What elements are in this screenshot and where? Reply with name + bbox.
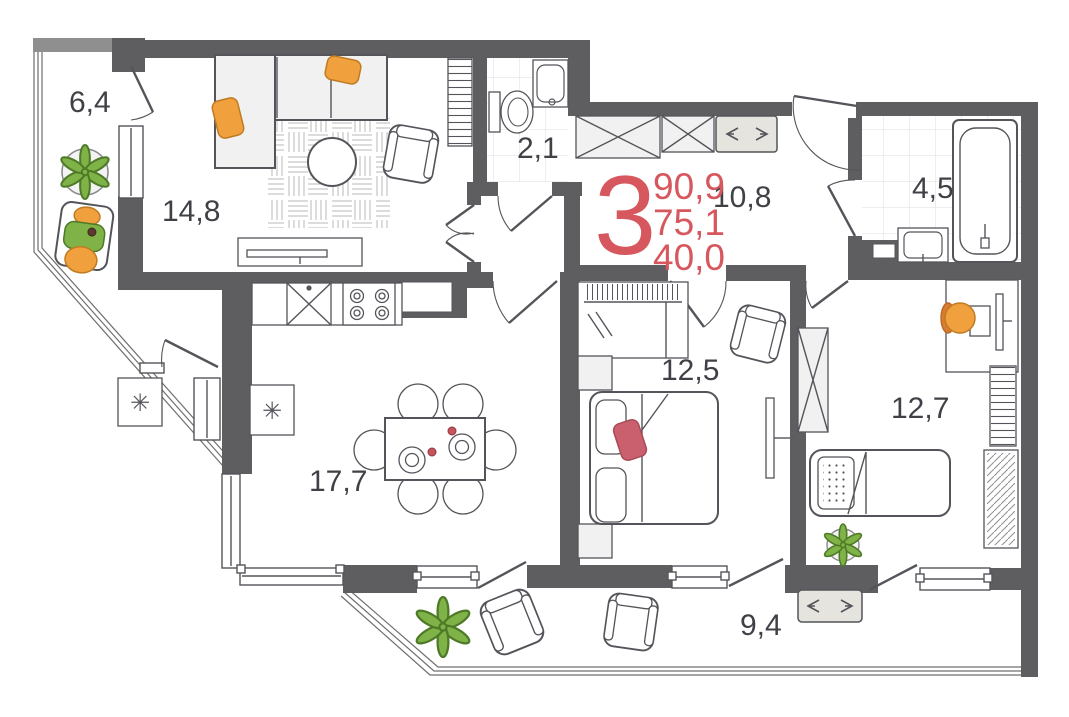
kitchen-sink xyxy=(287,283,331,325)
armchair-living xyxy=(382,124,440,185)
bathroom-sink xyxy=(898,228,948,262)
sliding-closet-hall xyxy=(716,116,777,152)
double-bed xyxy=(590,392,718,524)
living-area: 40,0 xyxy=(653,237,725,278)
floor-plan-svg: ✳ ✳ 6,4 14,8 2,1 10,8 4,5 xyxy=(0,0,1069,717)
kitchen-loggia-window-box xyxy=(194,378,220,440)
ladder-shelf xyxy=(448,58,472,146)
tv-icon xyxy=(247,250,327,257)
fridge-icon: ✳ xyxy=(262,397,282,425)
hallway-storage xyxy=(576,116,777,158)
kitchen-window xyxy=(413,566,479,588)
room-label-balcony: 9,4 xyxy=(740,609,782,642)
room-label-wc: 2,1 xyxy=(517,132,559,165)
room-label-bedroom: 12,5 xyxy=(661,354,719,387)
sliding-closet-kids xyxy=(798,590,862,622)
bedroom-window xyxy=(668,566,729,588)
total-area: 90,9 xyxy=(653,166,725,207)
apple-icon xyxy=(448,427,456,435)
cup-icon xyxy=(87,228,96,237)
kids-room-window xyxy=(916,568,992,590)
kitchen-corner-window-horizontal xyxy=(237,565,344,585)
toilet xyxy=(489,91,533,133)
coffee-table xyxy=(308,138,356,186)
lounge-chair-person xyxy=(53,201,114,277)
monitor-icon xyxy=(996,294,1003,350)
apple-icon xyxy=(428,448,436,456)
vent-shaft-box xyxy=(398,282,452,312)
room-label-kids-room: 12,7 xyxy=(891,392,949,425)
single-bed xyxy=(810,450,950,516)
room-label-living: 14,8 xyxy=(162,195,220,228)
stove xyxy=(343,283,395,325)
wc-sink xyxy=(533,60,568,107)
wardrobe-x-1 xyxy=(576,116,660,158)
radiator-kids xyxy=(990,366,1016,446)
loggia-appliance-niche: ✳ xyxy=(118,378,162,426)
room-label-kitchen: 17,7 xyxy=(309,465,367,498)
wardrobe-x-3 xyxy=(798,328,828,432)
nightstand-2 xyxy=(578,524,612,558)
appliance-icon: ✳ xyxy=(130,389,150,417)
rooms-count: 3 xyxy=(594,153,656,278)
wardrobe-hatch xyxy=(984,450,1018,548)
entrance-opening xyxy=(792,100,856,118)
room-label-loggia: 6,4 xyxy=(69,86,111,119)
wardrobe-x-2 xyxy=(662,116,714,152)
room-label-bathroom: 4,5 xyxy=(912,172,954,205)
loggia-top xyxy=(53,145,114,276)
plan-summary: 3 90,9 75,1 40,0 xyxy=(594,153,725,278)
bed-pillow-2 xyxy=(596,468,626,522)
bedroom-wardrobe xyxy=(578,282,688,358)
bathtub xyxy=(953,120,1017,262)
fridge-niche: ✳ xyxy=(250,385,294,435)
kitchen-corner-window-vertical xyxy=(222,474,240,568)
desk-chair xyxy=(941,303,975,333)
nightstand-1 xyxy=(578,356,612,390)
living-balcony-window xyxy=(119,126,143,198)
bathroom-niche-box xyxy=(873,244,895,258)
armchair-balcony-2 xyxy=(603,592,659,652)
floor-plan: ✳ ✳ 6,4 14,8 2,1 10,8 4,5 xyxy=(0,0,1069,717)
